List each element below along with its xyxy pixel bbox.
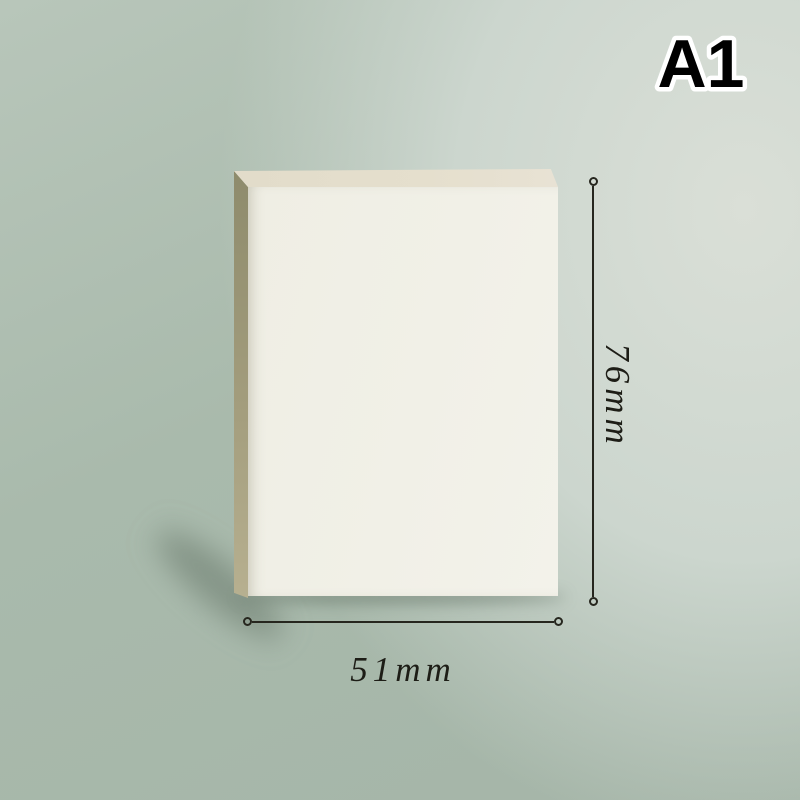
variant-label: A1 [591, 11, 800, 121]
height-dimension: 76mm [589, 177, 598, 606]
dimension-line [592, 186, 594, 597]
pad-front-face [248, 187, 558, 596]
width-dimension-label: 51mm [350, 650, 456, 690]
variant-label-text: A1 [658, 26, 745, 102]
dimension-endpoint-dot [589, 597, 598, 606]
height-dimension-label: 76mm [597, 343, 637, 449]
pad-side-face [234, 171, 248, 598]
dimension-endpoint-dot [243, 617, 252, 626]
width-dimension: 51mm [243, 617, 563, 627]
product-image: A1 76mm 51mm [0, 0, 800, 800]
dimension-line [252, 621, 554, 623]
dimension-endpoint-dot [589, 177, 598, 186]
dimension-endpoint-dot [554, 617, 563, 626]
pad-top-face [234, 169, 558, 187]
